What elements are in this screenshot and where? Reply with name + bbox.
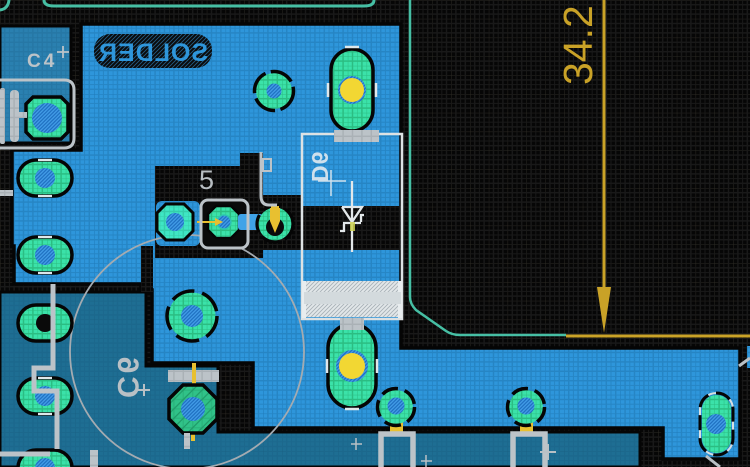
svg-text:C4: C4 xyxy=(27,51,57,72)
svg-text:D6: D6 xyxy=(307,151,333,182)
svg-text:C6: C6 xyxy=(111,354,144,398)
svg-text:5: 5 xyxy=(199,165,214,195)
svg-text:34.2: 34.2 xyxy=(555,5,601,85)
svg-text:SOLDER: SOLDER xyxy=(98,39,208,67)
